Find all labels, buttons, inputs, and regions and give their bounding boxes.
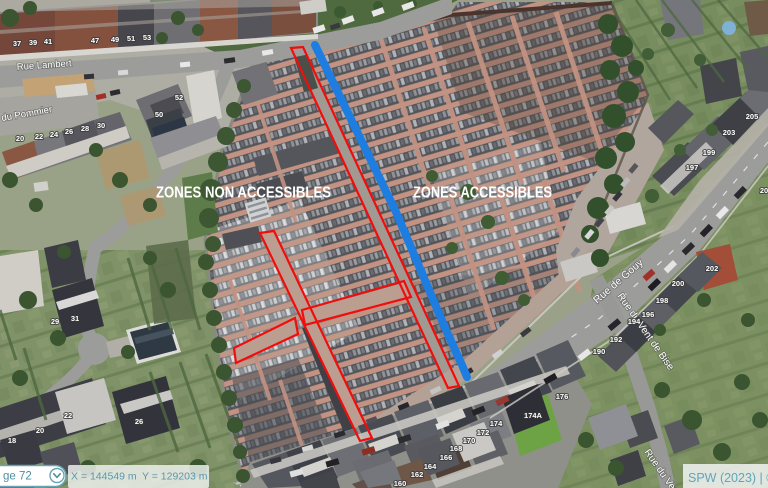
svg-text:190: 190 bbox=[593, 347, 606, 356]
svg-text:196: 196 bbox=[642, 310, 655, 319]
svg-text:53: 53 bbox=[143, 33, 151, 42]
svg-text:29: 29 bbox=[51, 317, 59, 326]
svg-text:18: 18 bbox=[8, 436, 16, 445]
svg-text:162: 162 bbox=[411, 470, 424, 479]
svg-text:168: 168 bbox=[450, 444, 463, 453]
svg-text:174: 174 bbox=[490, 419, 503, 428]
svg-text:203: 203 bbox=[723, 128, 736, 137]
svg-text:51: 51 bbox=[127, 34, 135, 43]
svg-text:41: 41 bbox=[44, 37, 52, 46]
svg-text:ZONES NON ACCESSIBLES: ZONES NON ACCESSIBLES bbox=[156, 185, 331, 202]
svg-text:31: 31 bbox=[71, 314, 79, 323]
svg-text:X = 144549 m: X = 144549 m bbox=[71, 471, 137, 483]
svg-text:24: 24 bbox=[50, 130, 59, 139]
svg-text:198: 198 bbox=[656, 296, 669, 305]
svg-text:39: 39 bbox=[29, 38, 37, 47]
svg-text:192: 192 bbox=[610, 335, 623, 344]
svg-text:49: 49 bbox=[111, 35, 119, 44]
svg-text:26: 26 bbox=[65, 127, 73, 136]
svg-text:194: 194 bbox=[628, 317, 641, 326]
svg-text:199: 199 bbox=[703, 148, 716, 157]
svg-text:28: 28 bbox=[81, 124, 89, 133]
svg-text:SPW (2023) | © S: SPW (2023) | © S bbox=[688, 471, 768, 485]
svg-text:22: 22 bbox=[64, 411, 72, 420]
svg-text:ZONES ACCESSIBLES: ZONES ACCESSIBLES bbox=[413, 185, 552, 202]
svg-text:176: 176 bbox=[556, 392, 569, 401]
svg-text:50: 50 bbox=[155, 110, 163, 119]
svg-text:200: 200 bbox=[672, 279, 685, 288]
svg-text:22: 22 bbox=[35, 132, 43, 141]
svg-text:172: 172 bbox=[477, 428, 490, 437]
svg-text:47: 47 bbox=[91, 36, 99, 45]
svg-text:202: 202 bbox=[706, 264, 719, 273]
svg-text:164: 164 bbox=[424, 462, 437, 471]
svg-text:20: 20 bbox=[760, 186, 768, 195]
svg-text:30: 30 bbox=[97, 121, 105, 130]
svg-text:20: 20 bbox=[36, 426, 44, 435]
svg-text:205: 205 bbox=[746, 112, 759, 121]
svg-text:ge 72: ge 72 bbox=[3, 471, 32, 483]
svg-text:197: 197 bbox=[686, 163, 699, 172]
svg-text:20: 20 bbox=[16, 134, 24, 143]
svg-text:170: 170 bbox=[463, 436, 476, 445]
svg-text:52: 52 bbox=[175, 93, 183, 102]
svg-text:174A: 174A bbox=[524, 411, 543, 420]
svg-text:160: 160 bbox=[394, 479, 407, 488]
svg-text:37: 37 bbox=[13, 39, 21, 48]
svg-text:Y = 129203 m: Y = 129203 m bbox=[142, 471, 208, 483]
svg-text:26: 26 bbox=[135, 417, 143, 426]
svg-text:166: 166 bbox=[440, 453, 453, 462]
